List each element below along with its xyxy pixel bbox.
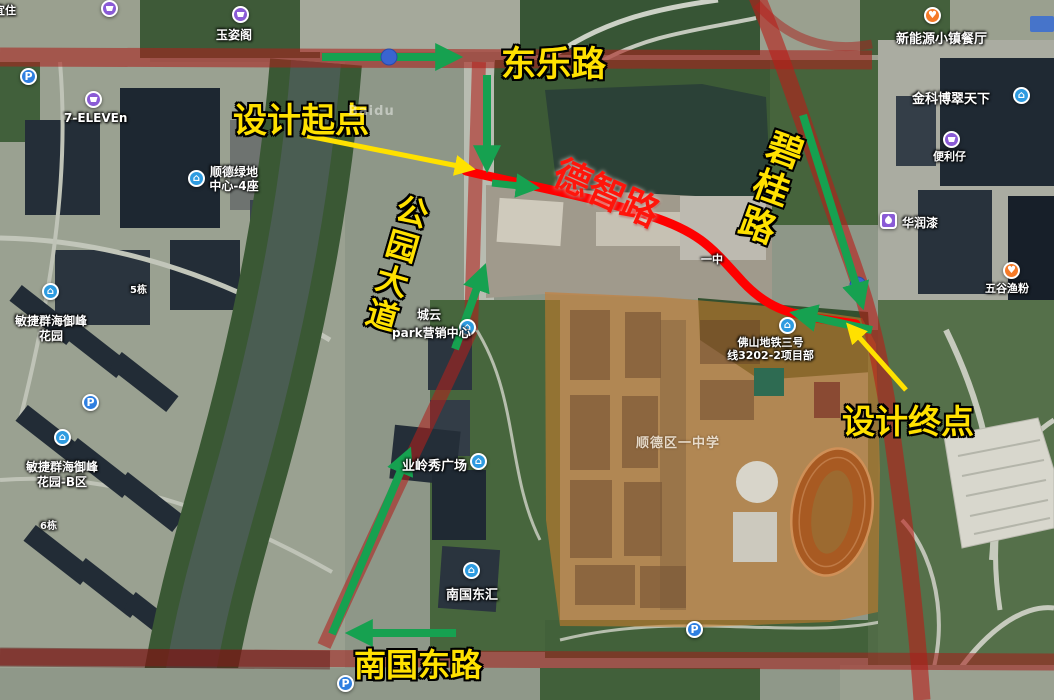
poi-label-line: 花园 xyxy=(8,329,94,344)
map-watermark: Baidu xyxy=(348,104,395,119)
shop-icon[interactable] xyxy=(101,0,118,17)
poi-label[interactable]: 南国东汇 xyxy=(446,584,498,603)
building-icon[interactable]: ⌂ xyxy=(42,283,59,300)
parking-icon[interactable]: P xyxy=(82,394,99,411)
poi-label-line: 顺德绿地 xyxy=(204,165,264,179)
shop-icon[interactable] xyxy=(232,6,249,23)
building-icon[interactable]: ⌂ xyxy=(779,317,796,334)
restaurant-icon[interactable]: ♥ xyxy=(924,7,941,24)
poi-label-line: 敏捷群海御峰 xyxy=(8,314,94,329)
arrow-route-start xyxy=(492,183,520,186)
school-name-label: 顺德区一中学 xyxy=(636,432,720,451)
parking-icon[interactable]: P xyxy=(686,621,703,638)
poi-label[interactable]: 7-ELEVEn xyxy=(64,111,127,125)
shop-icon[interactable] xyxy=(943,131,960,148)
poi-label-line: 佛山地铁三号 xyxy=(713,336,828,349)
building-number-label: 5栋 xyxy=(130,281,147,296)
poi-label-line: 中心-4座 xyxy=(204,179,264,193)
poi-label-line: 花园-B区 xyxy=(18,475,106,490)
restaurant-icon[interactable]: ♥ xyxy=(1003,262,1020,279)
annotation-design-end: 设计终点 xyxy=(842,395,974,443)
building-icon[interactable]: ⌂ xyxy=(188,170,205,187)
building-number-label: 6栋 xyxy=(40,517,57,532)
poi-label-line: 敏捷群海御峰 xyxy=(18,460,106,475)
poi-label[interactable]: 敏捷群海御峰 花园 xyxy=(8,314,94,344)
building-icon[interactable]: ⌂ xyxy=(54,429,71,446)
poi-label[interactable]: 城云 xyxy=(417,306,441,323)
clipped-poi-tag[interactable] xyxy=(1030,16,1054,32)
satellite-map-canvas[interactable]: 设计起点 东乐路 德智路 碧桂路 公园大道 设计终点 南国东路 ⌂ ⌂ ⌂ ⌂ … xyxy=(0,0,1054,700)
poi-label: 一中 xyxy=(701,251,723,267)
poi-label[interactable]: park营销中心 xyxy=(392,324,471,341)
poi-label[interactable]: 业岭秀广场 xyxy=(402,455,467,474)
poi-label[interactable]: 顺德绿地 中心-4座 xyxy=(204,165,264,193)
building-icon[interactable]: ⌂ xyxy=(463,562,480,579)
poi-label[interactable]: 敏捷群海御峰 花园-B区 xyxy=(18,460,106,490)
road-label-dongle: 东乐路 xyxy=(501,36,606,87)
arrow-design-end-pointer xyxy=(858,336,906,390)
shop-icon[interactable] xyxy=(85,91,102,108)
poi-label[interactable]: 便利仔 xyxy=(933,148,966,164)
arrow-gongyuan-north xyxy=(332,468,402,634)
annotation-vectors xyxy=(0,0,1054,700)
parking-icon[interactable]: P xyxy=(20,68,37,85)
poi-label[interactable]: 宜住 xyxy=(0,2,16,18)
road-label-nanguo: 南国东路 xyxy=(354,640,482,686)
poi-label[interactable]: 新能源小镇餐厅 xyxy=(896,28,987,47)
building-icon[interactable]: ⌂ xyxy=(470,453,487,470)
poi-label[interactable]: 五谷渔粉 xyxy=(985,280,1029,296)
parking-icon[interactable]: P xyxy=(337,675,354,692)
poi-label[interactable]: 佛山地铁三号 线3202-2项目部 xyxy=(713,336,828,362)
poi-label-line: 线3202-2项目部 xyxy=(713,349,828,362)
paint-store-icon[interactable] xyxy=(880,212,897,229)
building-icon[interactable]: ⌂ xyxy=(1013,87,1030,104)
poi-label[interactable]: 金科博翠天下 xyxy=(912,88,990,107)
poi-label[interactable]: 玉姿阁 xyxy=(216,26,252,43)
poi-label[interactable]: 华润漆 xyxy=(902,214,938,231)
traffic-dot xyxy=(381,49,397,65)
